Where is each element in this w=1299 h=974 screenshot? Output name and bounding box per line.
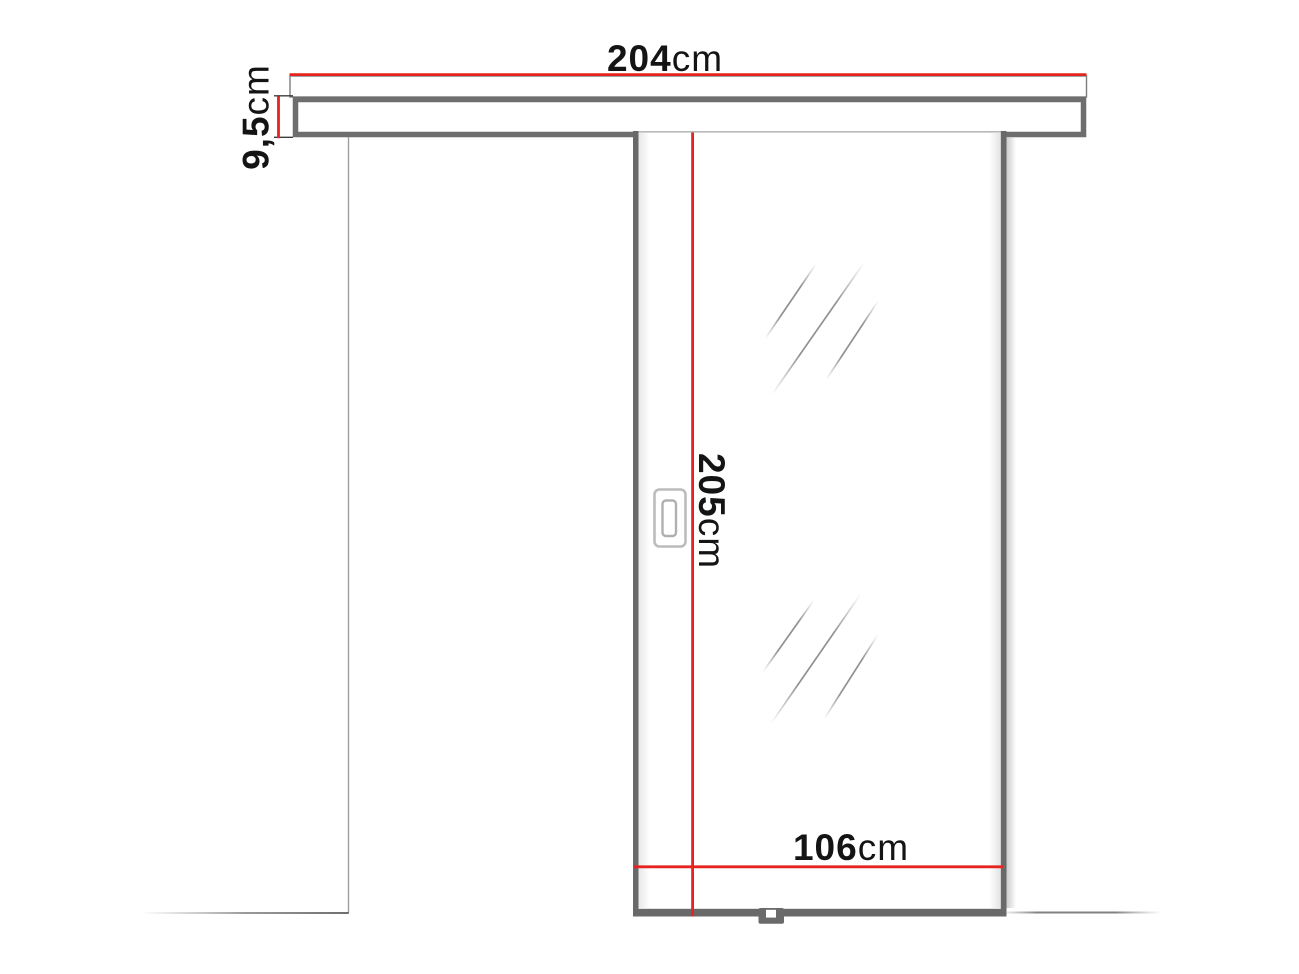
label-door-width: 106cm	[793, 827, 909, 868]
track-rail	[296, 100, 1084, 135]
door-panel	[633, 131, 1016, 924]
label-door-width-unit: cm	[858, 827, 909, 868]
door-frame-right	[1001, 131, 1007, 917]
floor-guide-notch	[766, 910, 776, 918]
door-dimension-diagram: 204cm 9,5cm 205cm 106cm	[0, 0, 1299, 974]
label-track-width-value: 204	[607, 38, 672, 79]
label-track-height-unit: cm	[236, 64, 277, 115]
label-track-width-unit: cm	[672, 38, 723, 79]
track-cover	[290, 76, 1087, 97]
label-door-height-value: 205	[691, 453, 732, 518]
label-track-height-value: 9,5	[236, 115, 277, 169]
label-door-height: 205cm	[691, 453, 732, 569]
door-inner-shade-left	[639, 133, 651, 908]
door-handle-recess	[663, 501, 677, 537]
label-track-height: 9,5cm	[236, 64, 277, 170]
label-door-width-value: 106	[793, 827, 858, 868]
label-door-height-unit: cm	[691, 518, 732, 569]
label-track-width: 204cm	[607, 38, 723, 79]
door-drop-shadow	[1007, 137, 1017, 908]
door-frame-bottom	[633, 909, 1007, 917]
door-frame-left	[633, 131, 639, 917]
door-glass-face	[633, 131, 1007, 917]
door-inner-shade-right	[989, 133, 1001, 908]
diagram-canvas: 204cm 9,5cm 205cm 106cm	[0, 0, 1299, 974]
